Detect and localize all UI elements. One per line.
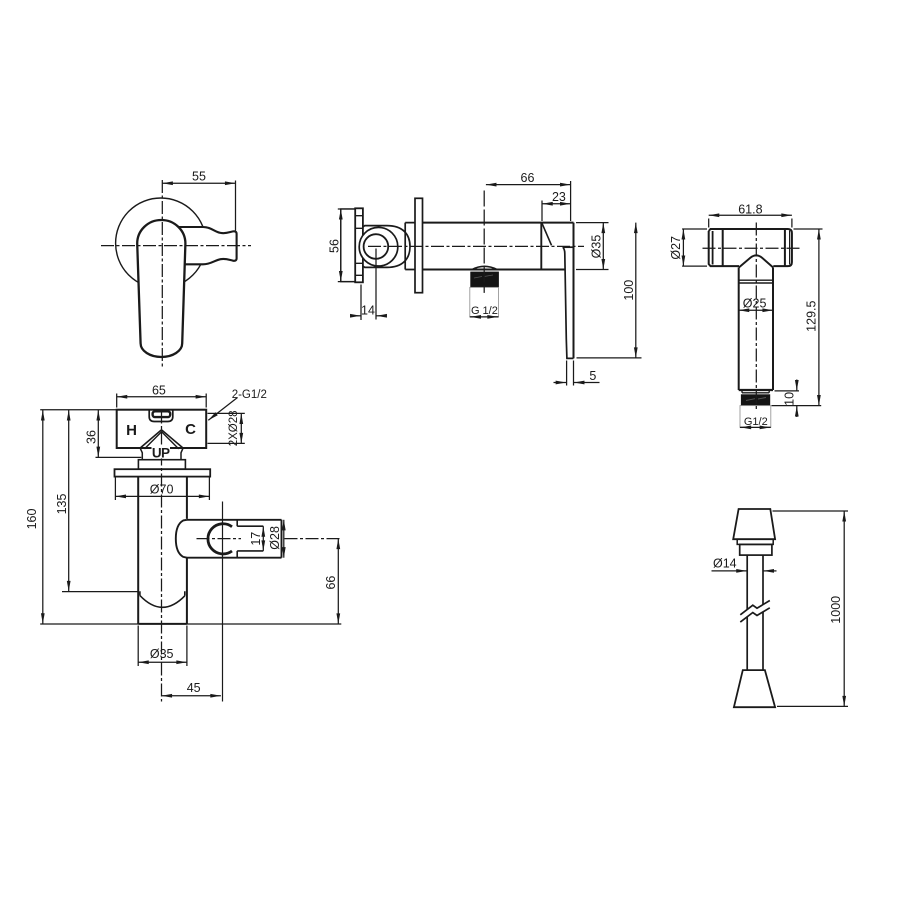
svg-text:36: 36 [84, 430, 98, 444]
svg-text:66: 66 [324, 576, 338, 590]
svg-text:23: 23 [552, 190, 566, 204]
svg-text:14: 14 [361, 304, 375, 318]
svg-text:UP: UP [152, 446, 170, 461]
svg-text:Ø28: Ø28 [268, 526, 282, 550]
svg-text:Ø25: Ø25 [743, 297, 767, 311]
svg-text:100: 100 [622, 280, 636, 301]
svg-text:G 1/2: G 1/2 [471, 305, 498, 317]
svg-text:Ø35: Ø35 [150, 647, 174, 661]
svg-text:129.5: 129.5 [805, 301, 819, 332]
svg-text:2XØ28: 2XØ28 [228, 410, 240, 446]
svg-text:Ø27: Ø27 [669, 236, 683, 260]
svg-text:Ø14: Ø14 [713, 556, 737, 570]
svg-text:17: 17 [249, 532, 263, 546]
svg-text:H: H [126, 422, 137, 439]
svg-text:65: 65 [152, 383, 166, 397]
svg-text:C: C [185, 421, 196, 438]
svg-text:Ø70: Ø70 [150, 482, 174, 496]
svg-text:Ø35: Ø35 [589, 235, 603, 259]
svg-text:135: 135 [55, 494, 69, 515]
svg-text:66: 66 [521, 171, 535, 185]
svg-text:5: 5 [589, 369, 596, 383]
svg-text:61.8: 61.8 [738, 203, 762, 217]
svg-text:45: 45 [187, 681, 201, 695]
svg-text:G1/2: G1/2 [744, 416, 768, 428]
svg-text:10: 10 [783, 392, 797, 406]
svg-text:160: 160 [25, 509, 39, 530]
svg-text:56: 56 [327, 239, 341, 253]
svg-text:55: 55 [192, 170, 206, 184]
svg-text:2-G1/2: 2-G1/2 [232, 389, 267, 401]
svg-text:1000: 1000 [829, 596, 843, 624]
